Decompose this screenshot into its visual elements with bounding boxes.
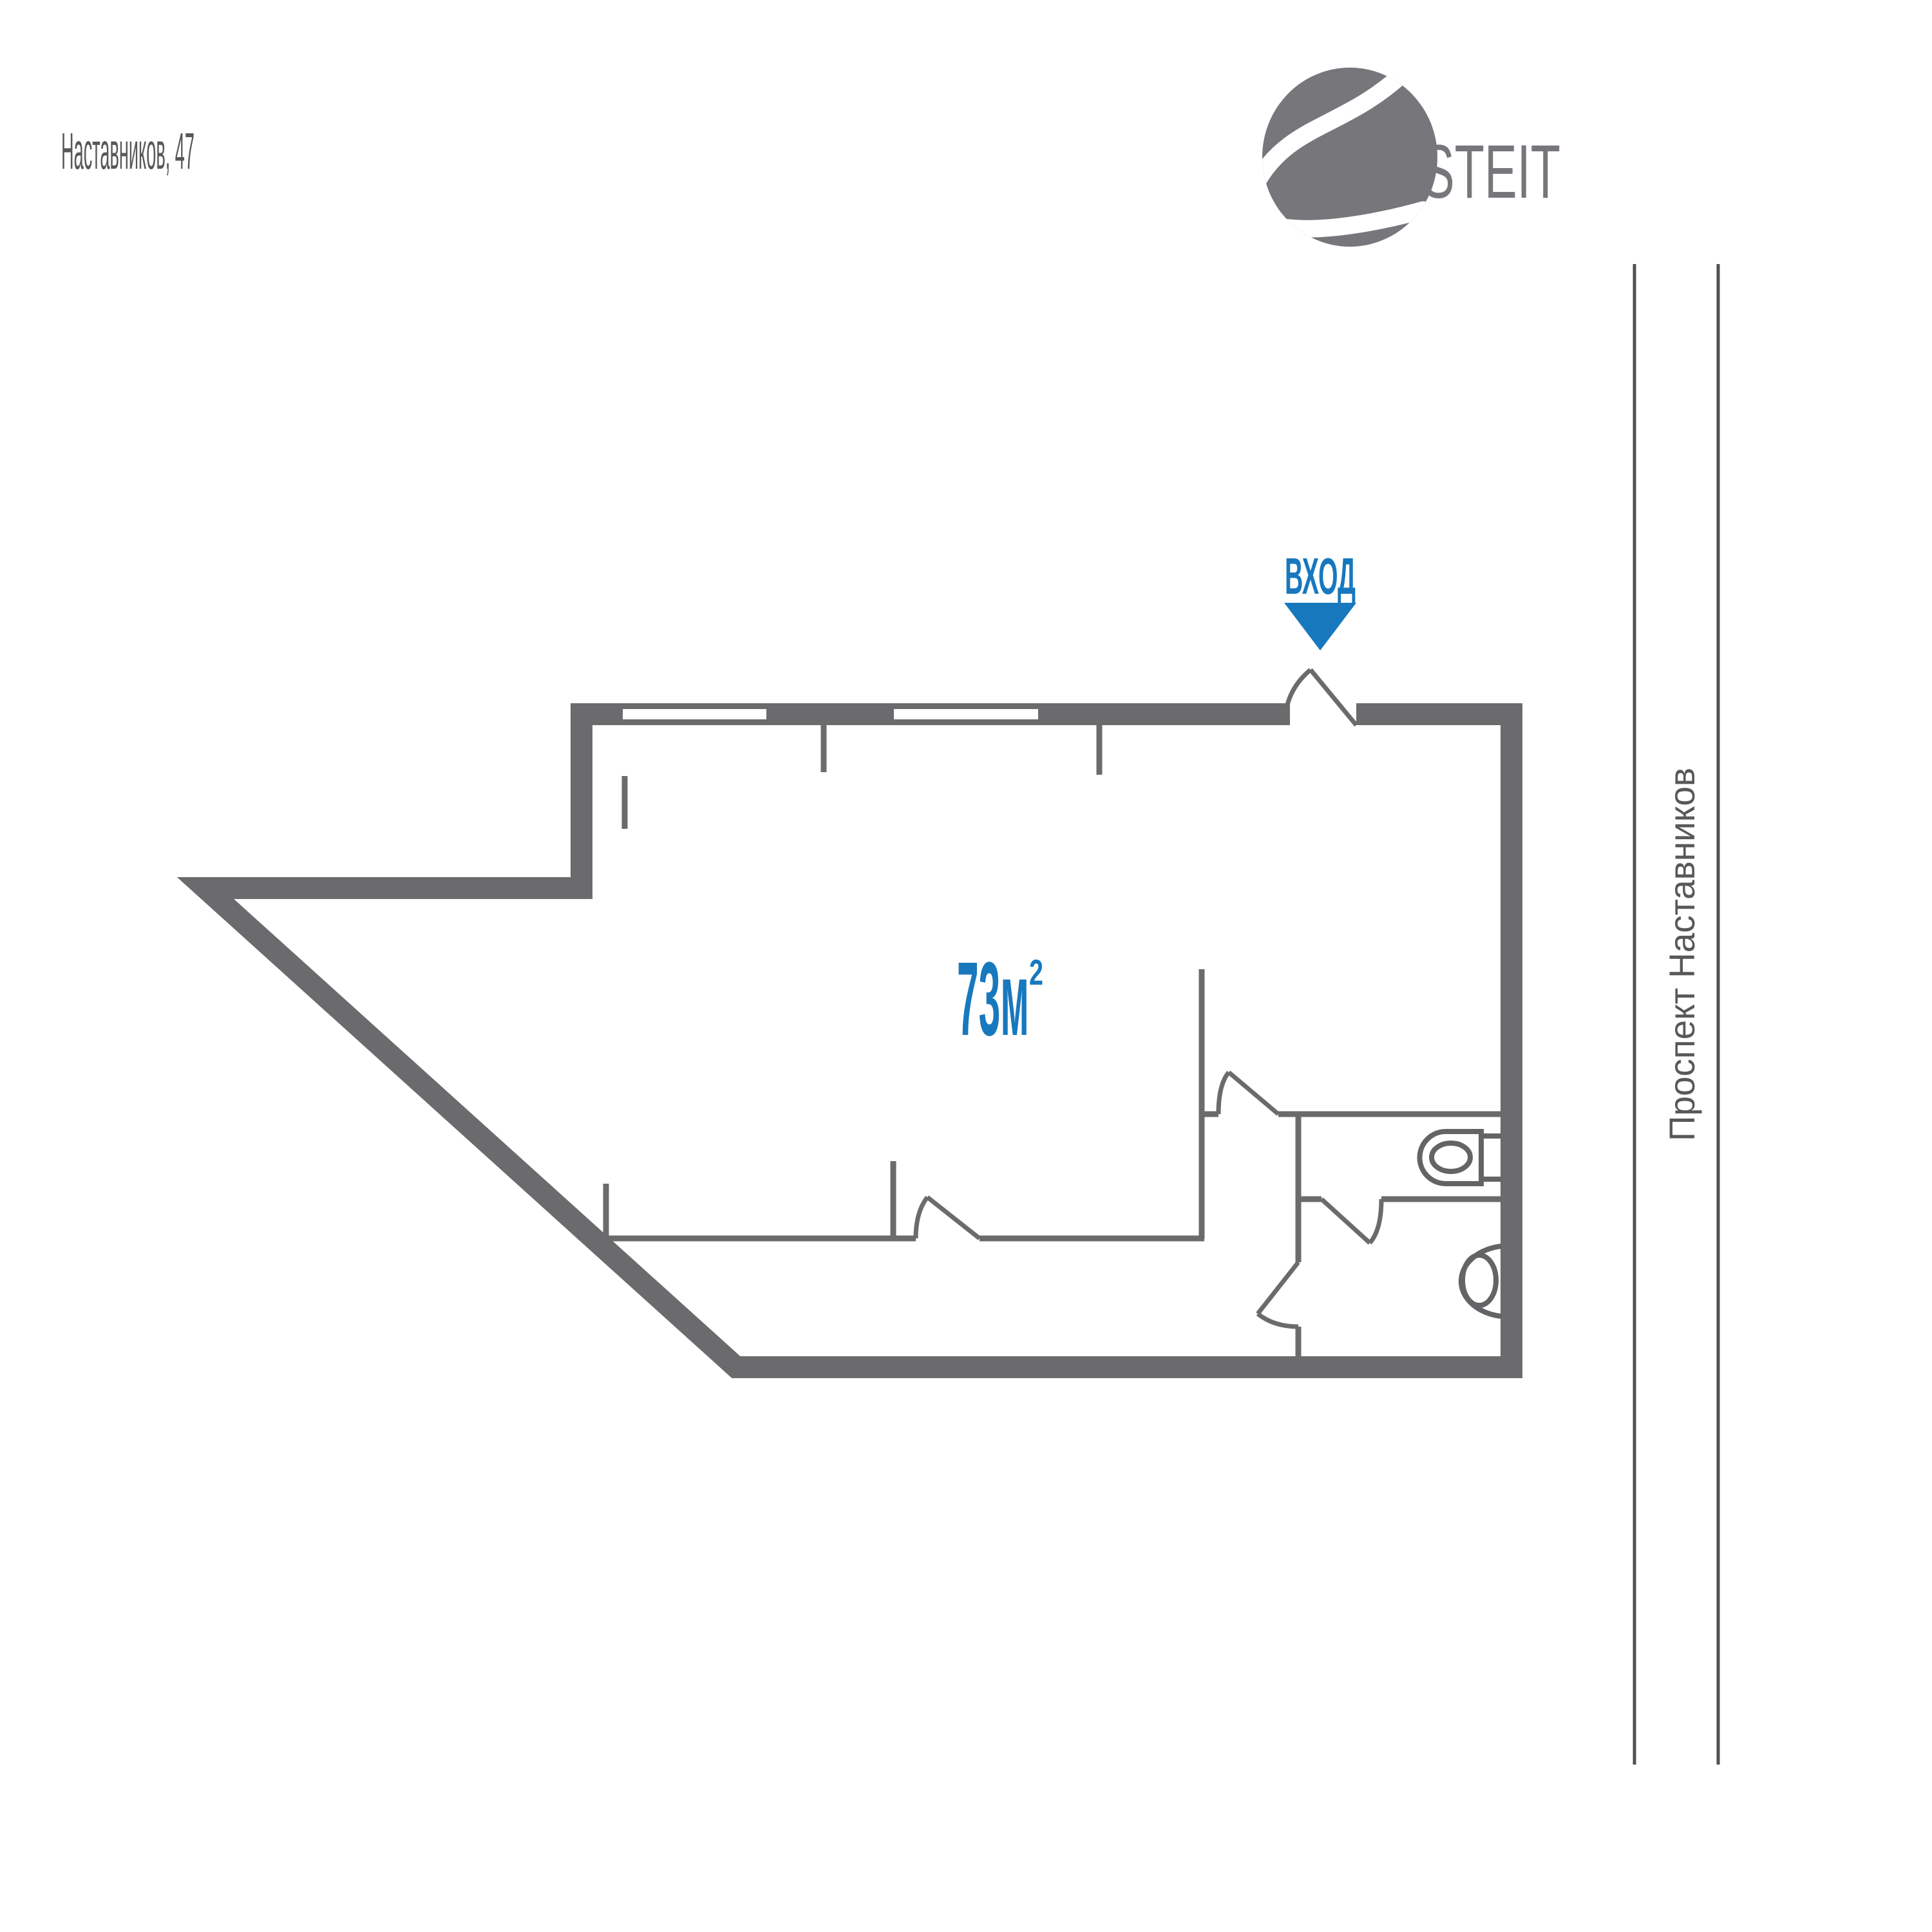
door-wc-upper	[1321, 1199, 1381, 1243]
entrance-label: ВХОД	[1285, 547, 1356, 605]
address-title: Наставников, 47	[61, 122, 194, 180]
door-wc-lower	[1258, 1262, 1298, 1327]
door-wc-lobby	[1218, 1072, 1278, 1114]
logo: STEIT	[1251, 68, 1560, 247]
area-superscript: 2	[1029, 953, 1043, 993]
window-2	[894, 709, 1038, 719]
door-room	[916, 1197, 980, 1238]
entrance-arrow-icon	[1284, 603, 1356, 650]
area-label-group: 73м	[957, 940, 1029, 1057]
area-superscript-group: 2	[1029, 953, 1043, 993]
window-1	[623, 709, 766, 719]
floor-plan-canvas: Наставников, 47 STEIT Проспект Наставник…	[0, 0, 1932, 1932]
outer-walls	[205, 714, 1511, 1367]
toilet-upper-icon	[1420, 1132, 1501, 1184]
toilet-lower-icon	[1461, 1246, 1502, 1316]
street-name-label: Проспект Наставников	[1662, 768, 1702, 1141]
floorplan-page: Наставников, 47 STEIT Проспект Наставник…	[0, 0, 1932, 1932]
area-value: 73м	[957, 940, 1029, 1057]
fixtures	[1420, 1132, 1502, 1316]
interior-walls	[606, 725, 1501, 1356]
logo-brand-text: STEIT	[1422, 129, 1560, 214]
street: Проспект Наставников	[1634, 264, 1718, 1765]
